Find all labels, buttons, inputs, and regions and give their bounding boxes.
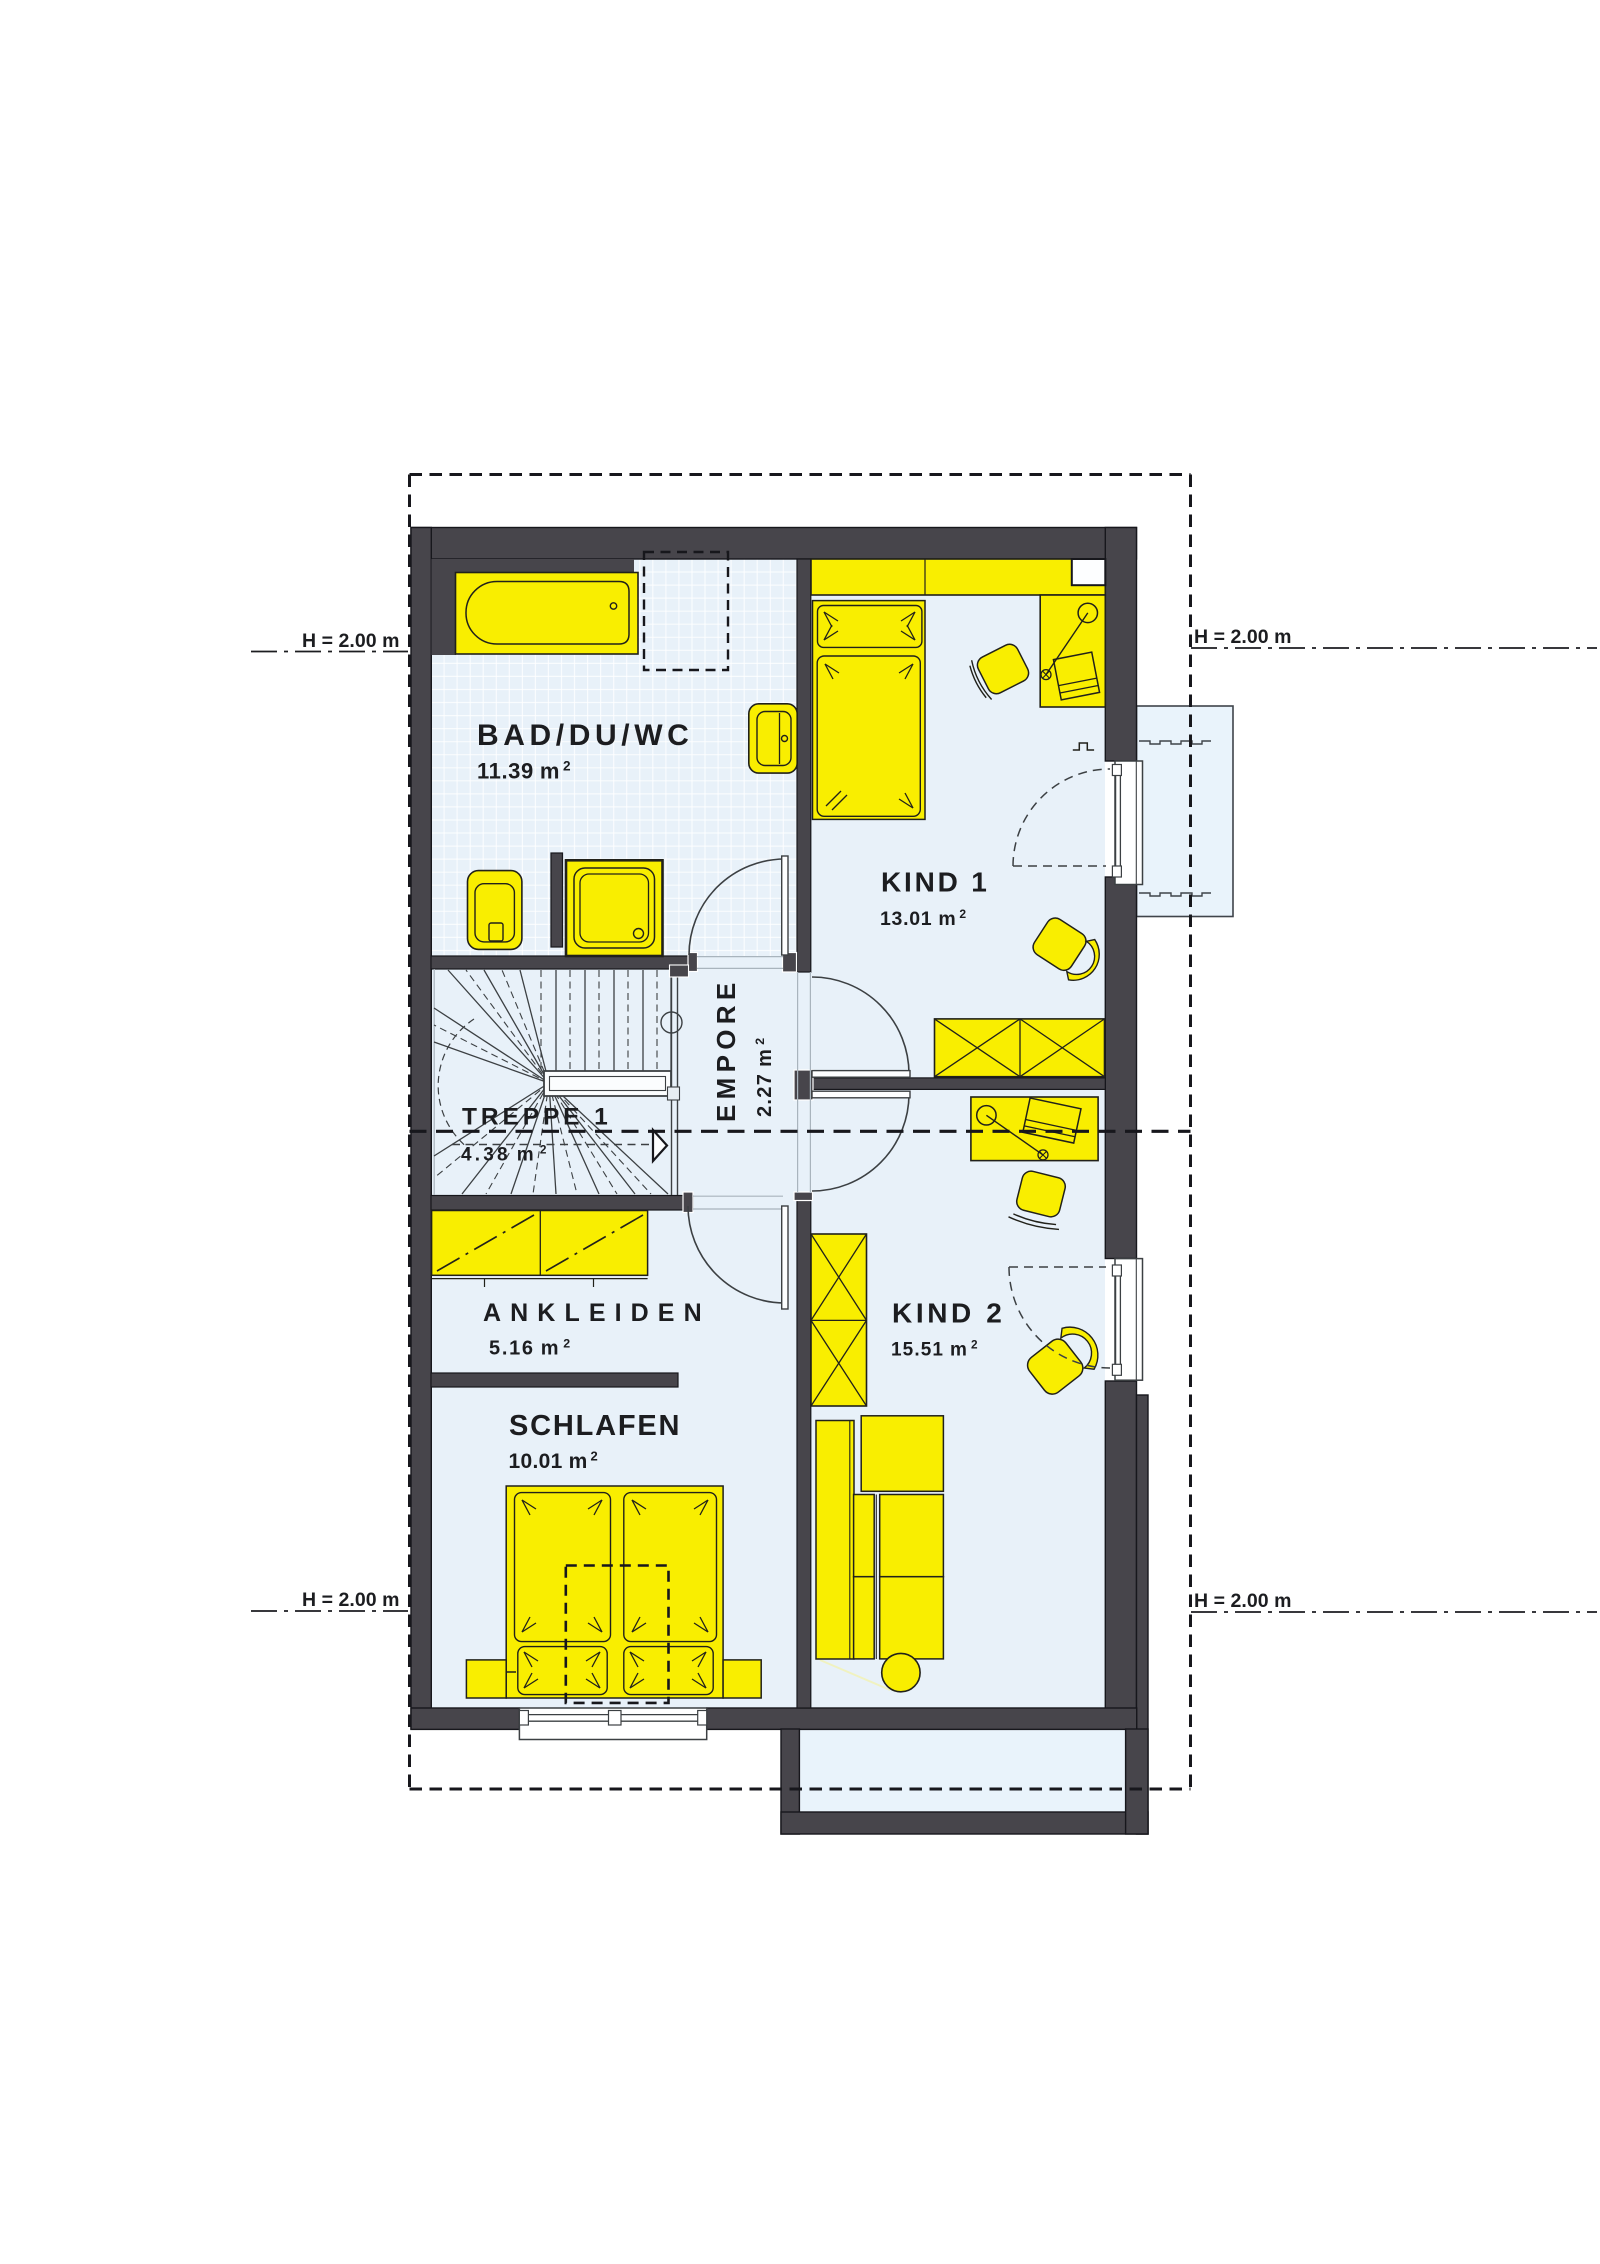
svg-text:H = 2.00 m: H = 2.00 m (1194, 1590, 1292, 1612)
svg-text:H = 2.00 m: H = 2.00 m (302, 1589, 400, 1611)
svg-text:TREPPE 1: TREPPE 1 (462, 1104, 612, 1131)
svg-text:5.16m2: 5.16m2 (489, 1336, 572, 1359)
svg-text:H = 2.00 m: H = 2.00 m (1194, 626, 1292, 648)
svg-text:15.51m2: 15.51m2 (891, 1338, 979, 1361)
svg-text:10.01m2: 10.01m2 (509, 1448, 599, 1473)
svg-text:2.27m2: 2.27m2 (753, 1037, 776, 1117)
svg-text:ANKLEIDEN: ANKLEIDEN (483, 1299, 711, 1327)
svg-text:SCHLAFEN: SCHLAFEN (509, 1410, 681, 1442)
svg-text:KIND 2: KIND 2 (892, 1298, 1005, 1329)
svg-text:4.38m2: 4.38m2 (461, 1143, 550, 1166)
svg-text:H = 2.00 m: H = 2.00 m (302, 630, 400, 652)
svg-text:13.01m2: 13.01m2 (880, 907, 967, 930)
svg-text:KIND 1: KIND 1 (881, 867, 990, 898)
svg-text:11.39m2: 11.39m2 (477, 759, 571, 784)
svg-text:EMPORE: EMPORE (711, 978, 741, 1122)
svg-text:BAD/DU/WC: BAD/DU/WC (477, 719, 693, 752)
